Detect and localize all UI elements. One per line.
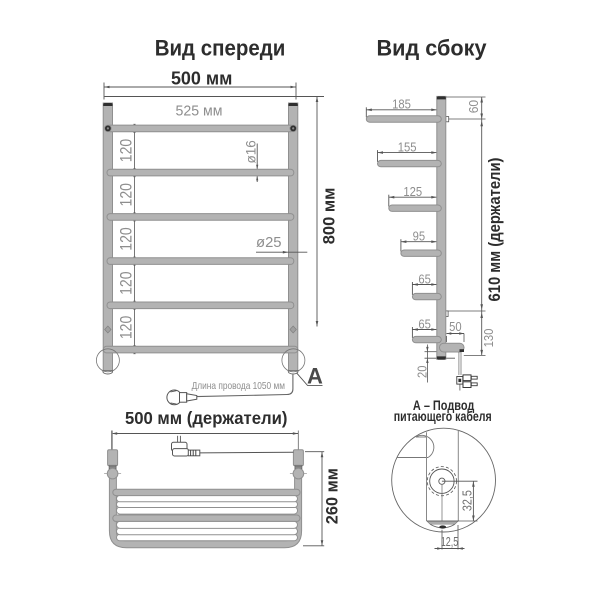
svg-text:50: 50 [449,320,462,334]
svg-text:800 мм: 800 мм [319,188,338,245]
svg-text:ø16: ø16 [242,140,258,164]
svg-text:ø25: ø25 [256,234,282,251]
svg-text:525 мм: 525 мм [176,104,223,120]
svg-text:120: 120 [117,316,135,339]
svg-text:120: 120 [117,227,135,250]
svg-text:32,5: 32,5 [460,490,474,511]
svg-text:60: 60 [467,100,481,113]
svg-text:120: 120 [117,272,135,295]
svg-text:130: 130 [482,329,496,348]
svg-text:260 мм: 260 мм [322,468,341,524]
svg-text:Вид спереди: Вид спереди [155,36,286,61]
svg-text:питающего кабеля: питающего кабеля [394,409,492,424]
svg-text:Длина провода 1050 мм: Длина провода 1050 мм [192,380,285,392]
svg-text:610 мм (держатели): 610 мм (держатели) [486,158,504,302]
svg-text:500 мм: 500 мм [171,69,233,89]
svg-text:Вид сбоку: Вид сбоку [377,36,488,61]
svg-text:120: 120 [117,139,135,162]
svg-text:500 мм (держатели): 500 мм (держатели) [125,408,288,428]
svg-text:20: 20 [415,365,429,378]
svg-text:А: А [307,364,323,389]
svg-text:120: 120 [117,183,135,206]
svg-text:12,5: 12,5 [441,535,459,549]
